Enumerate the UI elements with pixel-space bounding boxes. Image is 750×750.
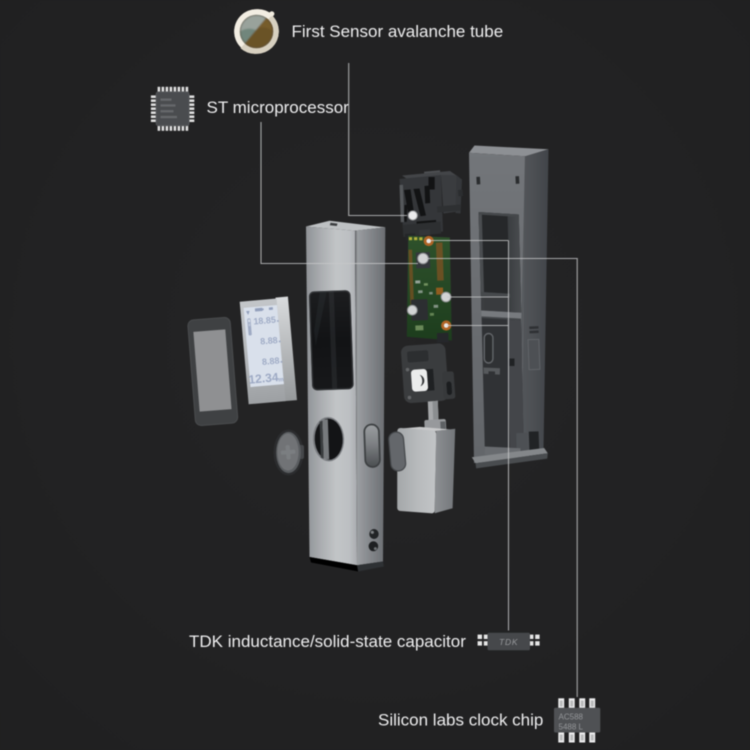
svg-text:TDK: TDK [499,637,518,647]
svg-text:8.88: 8.88 [262,355,280,366]
svg-text:5488 L: 5488 L [559,723,584,732]
svg-text:12.34: 12.34 [248,370,279,387]
svg-text:First Sensor avalanche tube: First Sensor avalanche tube [292,22,504,41]
svg-text:8.88: 8.88 [260,335,278,346]
svg-text:Silicon labs clock chip: Silicon labs clock chip [378,711,543,730]
svg-text:TDK inductance/solid-state cap: TDK inductance/solid-state capacitor [189,632,466,651]
svg-text:18.85: 18.85 [253,315,276,327]
svg-text:AC588: AC588 [559,713,584,722]
svg-text:ST microprocessor: ST microprocessor [207,98,350,117]
svg-text:m: m [278,377,284,383]
